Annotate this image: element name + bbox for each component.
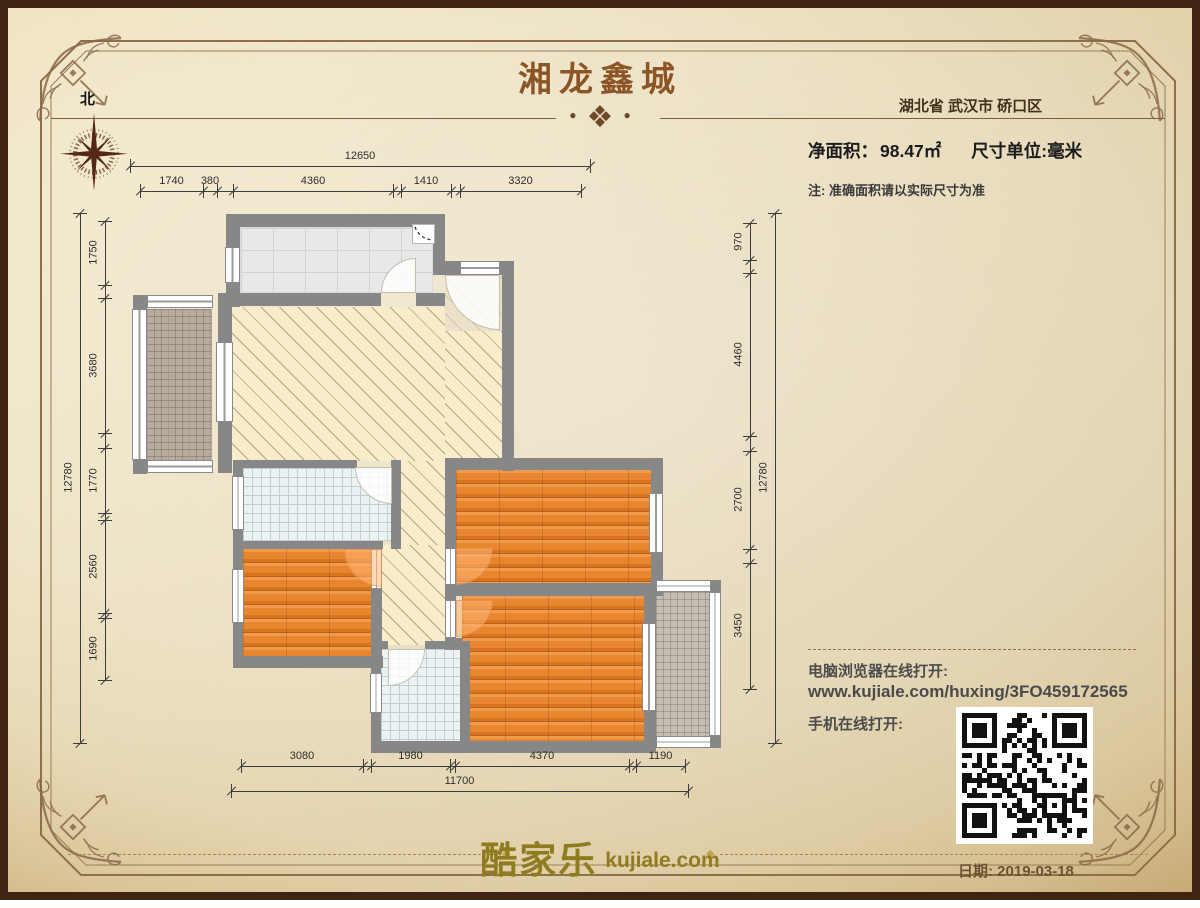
dimension-label: 11700 (420, 775, 500, 788)
wall (371, 541, 382, 549)
dimension-line (231, 791, 688, 792)
dimension-label: 970 (733, 206, 746, 276)
dimension-label: 1190 (621, 750, 701, 763)
qr-code (956, 707, 1093, 844)
floorplan-poster: 湘龙鑫城 ●❖● 湖北省 武汉市 硚口区 净面积：98.47㎡尺寸单位:毫米 注… (0, 0, 1200, 900)
window (216, 342, 233, 422)
dimension-label: 12780 (758, 443, 771, 513)
door-frame (445, 600, 456, 638)
wall (456, 583, 663, 596)
window (656, 736, 711, 748)
dimension-label: 2560 (88, 531, 101, 601)
window (225, 247, 240, 283)
dimension-label: 1750 (88, 218, 101, 288)
bedroom-floor (462, 596, 644, 741)
window (147, 460, 213, 473)
mobile-open-label: 手机在线打开: (808, 713, 903, 734)
dimension-label: 1690 (88, 614, 101, 684)
dimension-label: 1770 (88, 445, 101, 515)
balcony-floor (147, 309, 212, 460)
date: 日期: 2019-03-18 (958, 860, 1074, 881)
wall (391, 460, 401, 549)
dimension-label: 3320 (481, 175, 561, 188)
hallway-floor (382, 545, 445, 645)
dimension-label: 4360 (273, 175, 353, 188)
wall (133, 460, 147, 474)
dimension-label: 1410 (386, 175, 466, 188)
window (370, 673, 382, 713)
wall (218, 293, 381, 306)
wall (416, 293, 445, 306)
wall (233, 460, 357, 468)
window (709, 592, 721, 736)
dimension-label: 3080 (262, 750, 342, 763)
dimension-line (80, 213, 81, 743)
logo-en: kujiale.com (605, 849, 719, 872)
wall (445, 585, 456, 600)
dimension-line (775, 213, 776, 743)
logo-cn: 酷家乐 (480, 840, 597, 881)
wall (233, 541, 383, 549)
dimension-label: 12650 (320, 150, 400, 163)
dimension-line (241, 766, 685, 767)
panel-divider (808, 649, 1136, 650)
share-url: www.kujiale.com/huxing/3FO459172565 (808, 682, 1128, 702)
entry-door-frame (460, 261, 500, 275)
wall (445, 261, 460, 275)
dimension-label: 3450 (733, 591, 746, 661)
window (232, 569, 244, 623)
balcony-floor (656, 592, 710, 736)
window (642, 623, 656, 711)
window (656, 580, 711, 592)
hallway-floor (401, 461, 445, 545)
pc-open-label: 电脑浏览器在线打开: (808, 660, 948, 681)
dimension-label: 1980 (371, 750, 451, 763)
dimension-label: 4460 (733, 319, 746, 389)
window (232, 476, 244, 530)
kitchen-corner-symbol (412, 224, 435, 244)
window (147, 295, 213, 308)
wall (233, 656, 383, 668)
dimension-label: 4370 (502, 750, 582, 763)
dimension-line (140, 191, 581, 192)
wall (460, 641, 470, 753)
window (132, 309, 147, 460)
wall (133, 295, 147, 309)
window (649, 493, 663, 553)
dimension-line (750, 223, 751, 689)
dimension-label: 12780 (63, 443, 76, 513)
wall (502, 261, 514, 471)
wall (445, 470, 456, 548)
door-frame (445, 548, 456, 585)
wall (445, 458, 663, 470)
dimension-label: 2700 (733, 465, 746, 535)
dimension-label: 380 (170, 175, 250, 188)
dimension-line (130, 166, 590, 167)
wall (425, 641, 460, 649)
dimension-label: 3680 (88, 330, 101, 400)
